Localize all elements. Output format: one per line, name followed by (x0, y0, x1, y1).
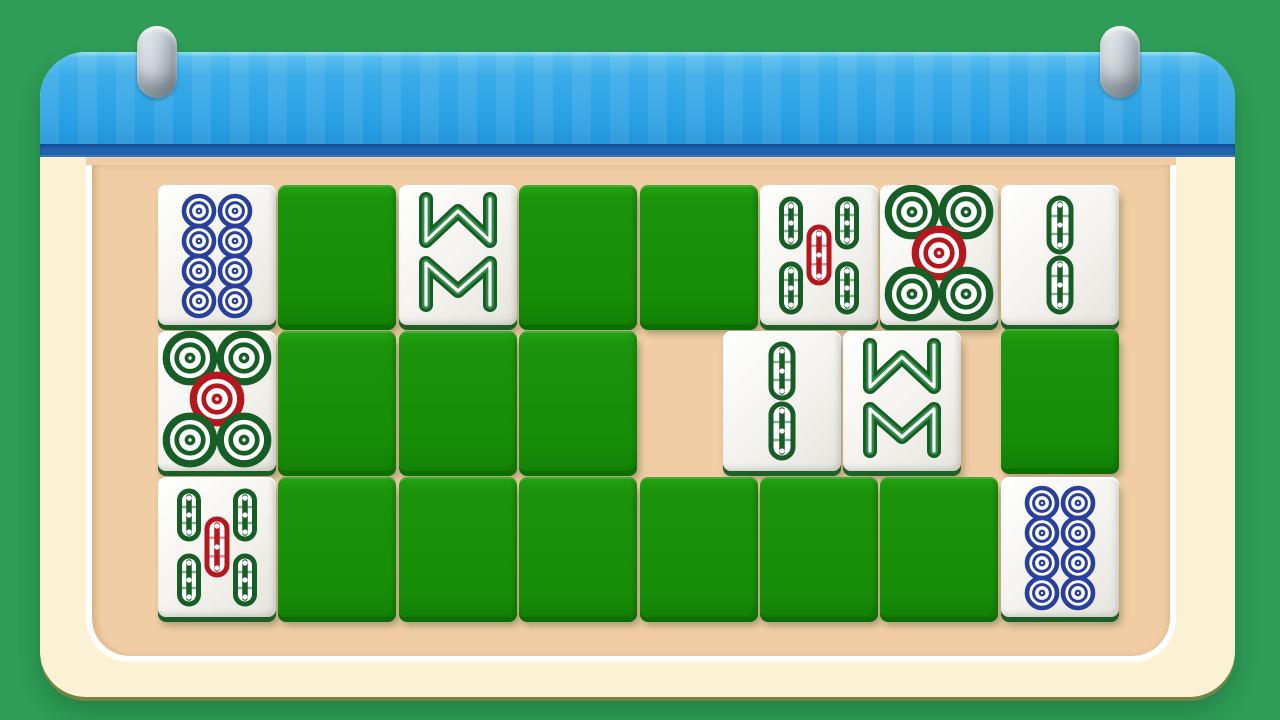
tile-face-down[interactable] (399, 331, 517, 471)
tile-circles-5[interactable] (158, 331, 276, 471)
tile-face-down[interactable] (1001, 329, 1119, 469)
bamboo-8-icon (399, 185, 517, 325)
tile-circles-8[interactable] (1001, 477, 1119, 617)
tile-face-down[interactable] (640, 185, 758, 325)
tile-face-down[interactable] (760, 477, 878, 617)
bamboo-8-icon (843, 331, 961, 471)
bamboo-5-icon (158, 477, 276, 617)
game-stage (0, 0, 1280, 720)
tile-circles-8[interactable] (158, 185, 276, 325)
tile-bamboo-5[interactable] (760, 185, 878, 325)
tile-bamboo-8[interactable] (843, 331, 961, 471)
tile-face-down[interactable] (519, 331, 637, 471)
tile-face-down[interactable] (640, 477, 758, 617)
tile-bamboo-8[interactable] (399, 185, 517, 325)
circles-8-icon (158, 185, 276, 325)
tile-face-down[interactable] (399, 477, 517, 617)
tile-face-down[interactable] (278, 477, 396, 617)
tile-face-down[interactable] (880, 477, 998, 617)
circles-8-icon (1001, 477, 1119, 617)
tile-face-down[interactable] (278, 331, 396, 471)
tile-bamboo-5[interactable] (158, 477, 276, 617)
tile-bamboo-2[interactable] (723, 331, 841, 471)
tile-face-down[interactable] (278, 185, 396, 325)
circles-5-icon (880, 185, 998, 325)
bamboo-2-icon (723, 331, 841, 471)
tile-face-down[interactable] (519, 477, 637, 617)
tile-board (0, 0, 1280, 720)
tile-bamboo-2[interactable] (1001, 185, 1119, 325)
screen: { "app": { "type": "mahjong-memory-match… (0, 0, 1280, 720)
tile-face-down[interactable] (519, 185, 637, 325)
tile-circles-5[interactable] (880, 185, 998, 325)
bamboo-5-icon (760, 185, 878, 325)
circles-5-icon (158, 331, 276, 471)
bamboo-2-icon (1001, 185, 1119, 325)
